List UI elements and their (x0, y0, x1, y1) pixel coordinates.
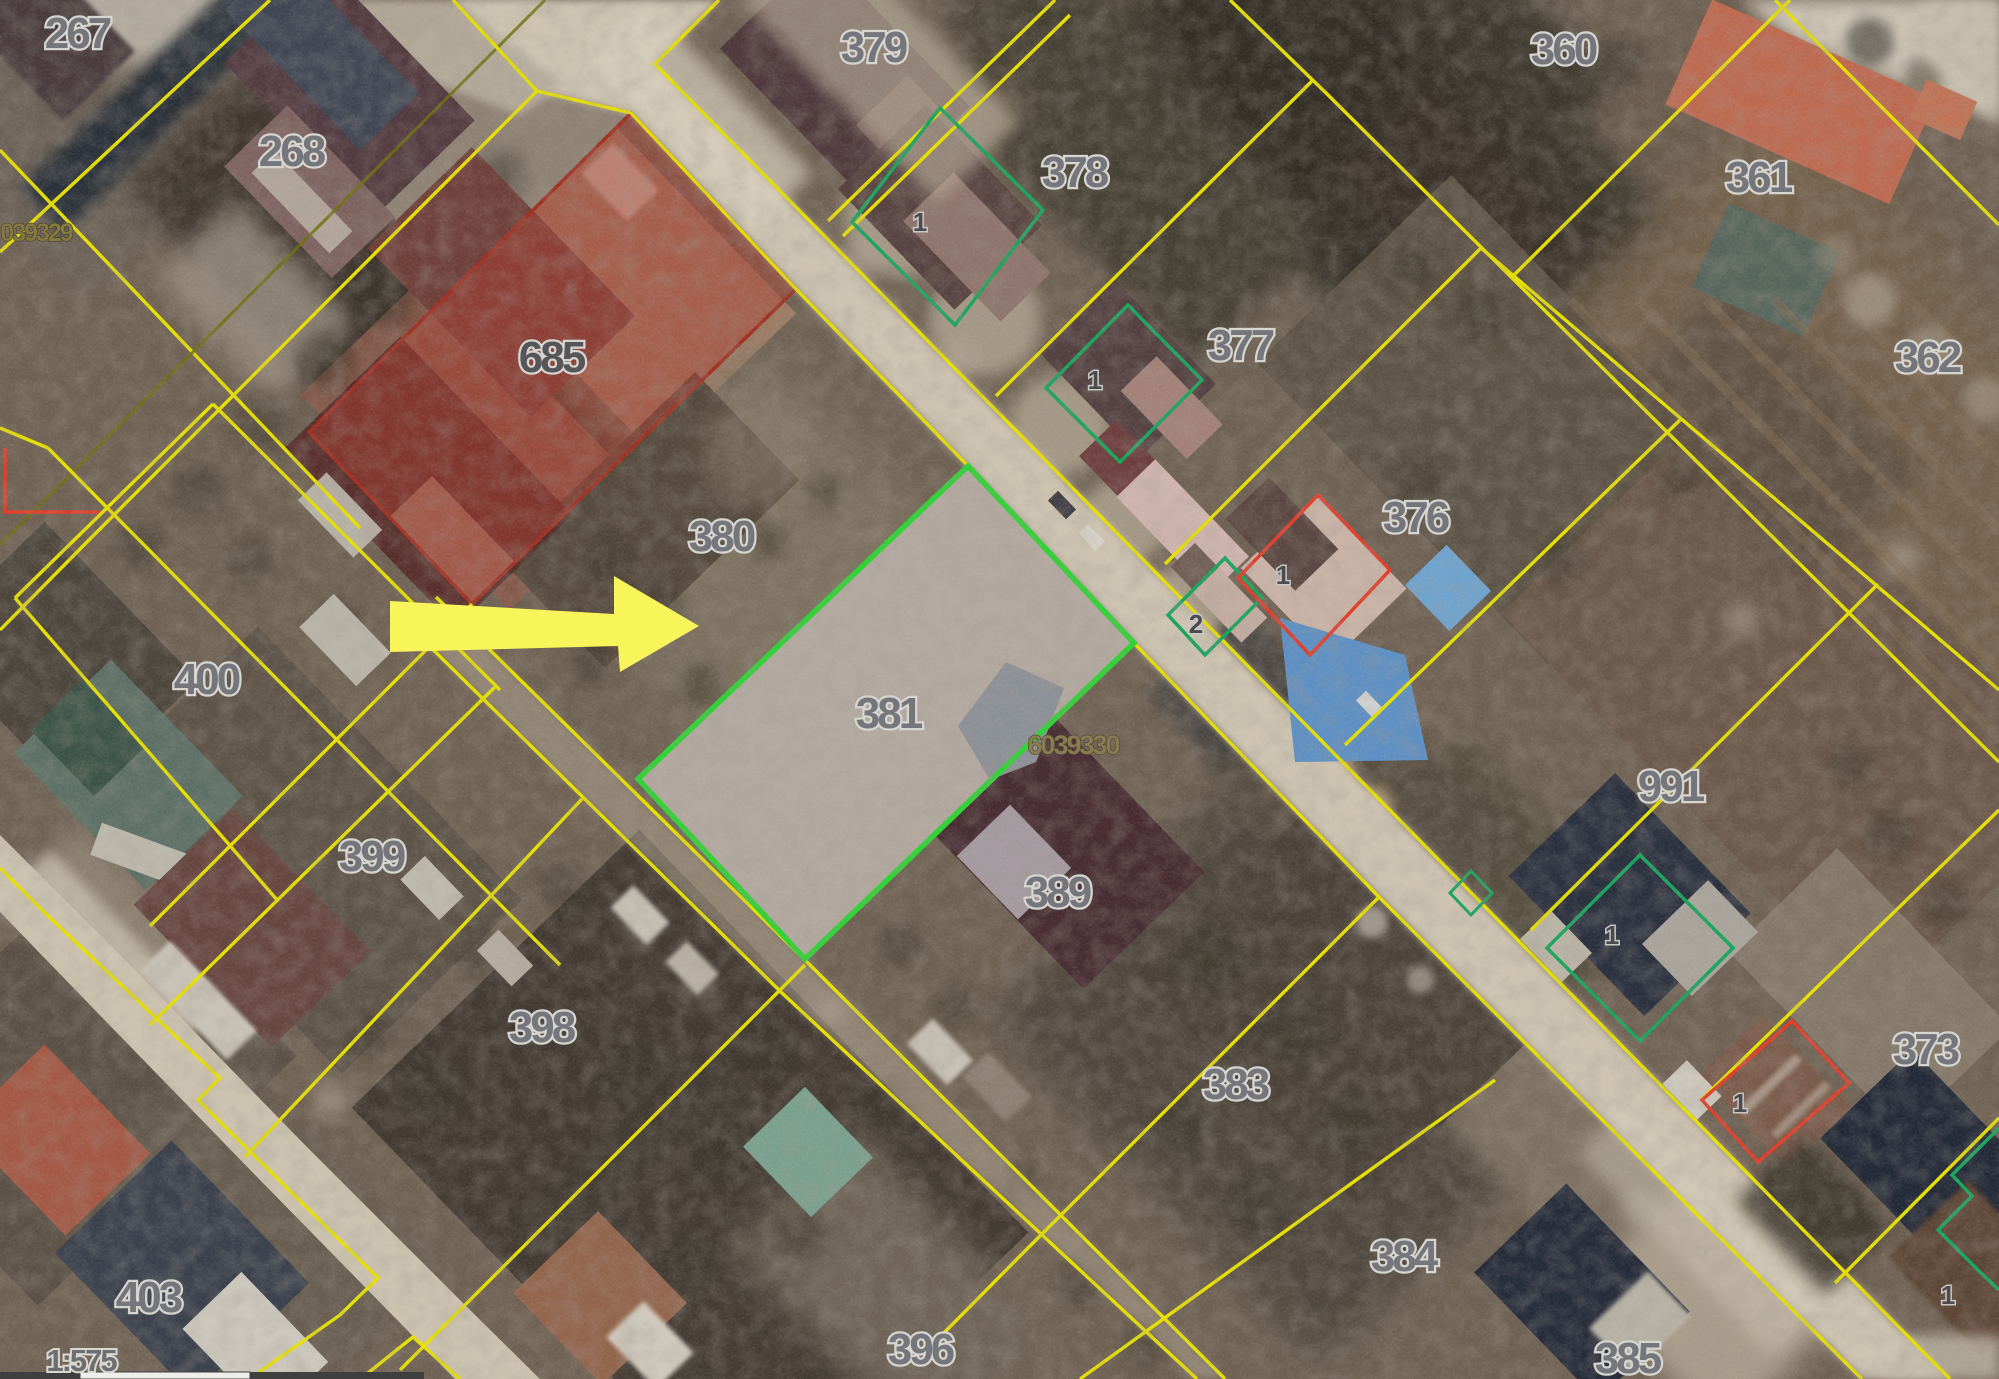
svg-text:361: 361 (1726, 153, 1793, 202)
svg-text:384: 384 (1371, 1232, 1439, 1281)
svg-text:383: 383 (1203, 1060, 1269, 1109)
svg-text:039329: 039329 (0, 219, 73, 247)
svg-text:1: 1 (1733, 1088, 1747, 1118)
svg-text:1: 1 (1941, 1280, 1955, 1310)
svg-text:396: 396 (888, 1325, 954, 1374)
svg-text:380: 380 (689, 512, 755, 561)
svg-text:378: 378 (1042, 148, 1109, 197)
svg-text:377: 377 (1208, 321, 1274, 370)
svg-text:2: 2 (1189, 609, 1203, 639)
svg-text:6039330: 6039330 (1027, 730, 1119, 760)
svg-text:400: 400 (174, 655, 240, 704)
svg-text:1: 1 (1088, 365, 1102, 395)
svg-text:268: 268 (259, 127, 326, 176)
svg-text:1: 1 (1276, 560, 1290, 590)
svg-text:1: 1 (913, 207, 927, 237)
svg-text:389: 389 (1025, 868, 1091, 917)
svg-text:376: 376 (1383, 493, 1449, 542)
svg-text:685: 685 (519, 333, 586, 382)
svg-text:991: 991 (1638, 762, 1705, 811)
svg-text:399: 399 (339, 832, 405, 881)
svg-text:381: 381 (856, 689, 923, 738)
svg-text:385: 385 (1595, 1334, 1662, 1379)
svg-text:403: 403 (116, 1273, 182, 1322)
svg-text:398: 398 (509, 1003, 576, 1052)
svg-text:362: 362 (1895, 333, 1961, 382)
svg-text:360: 360 (1531, 25, 1597, 74)
svg-text:379: 379 (841, 23, 907, 72)
svg-text:373: 373 (1893, 1025, 1959, 1074)
svg-text:1: 1 (1605, 920, 1619, 950)
svg-text:267: 267 (45, 9, 111, 58)
svg-text:1:575: 1:575 (46, 1343, 117, 1378)
